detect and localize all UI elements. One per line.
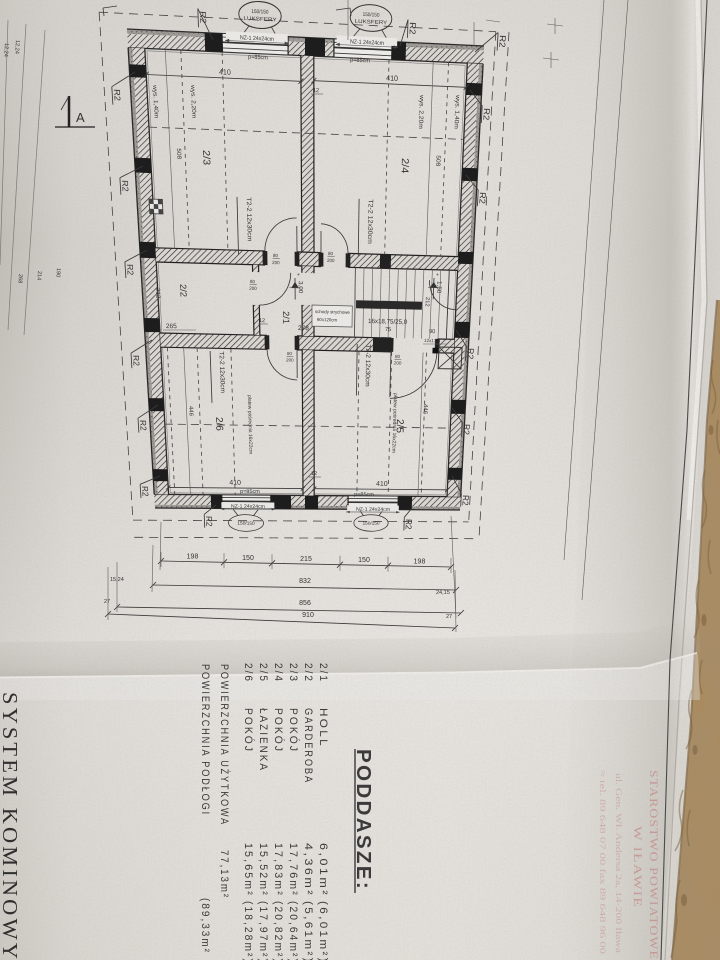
svg-text:≈ tel. 89 648 07 00 fax 89 648: ≈ tel. 89 648 07 00 fax 89 648 96 00 [598, 770, 608, 954]
svg-text:198: 198 [414, 558, 426, 565]
svg-text:2/4: 2/4 [272, 663, 284, 683]
svg-text:446: 446 [422, 404, 428, 415]
svg-text:80: 80 [250, 279, 256, 284]
svg-text:27: 27 [446, 614, 452, 620]
svg-text:150/150: 150/150 [251, 9, 268, 16]
svg-text:GARDEROBA: GARDEROBA [302, 708, 314, 784]
svg-text:schody strychowe: schody strychowe [315, 309, 350, 315]
svg-text:2/2: 2/2 [302, 663, 314, 683]
svg-text:R2: R2 [481, 108, 491, 121]
svg-text:410: 410 [229, 480, 241, 487]
svg-text:508: 508 [434, 155, 441, 167]
svg-text:17,83m²: 17,83m² [272, 843, 284, 897]
svg-text:190: 190 [55, 268, 61, 277]
svg-text:A: A [76, 110, 85, 125]
svg-text:12: 12 [311, 471, 317, 477]
svg-text:265: 265 [166, 323, 178, 330]
svg-text:214: 214 [36, 271, 42, 280]
svg-text:12,24: 12,24 [2, 43, 9, 57]
svg-text:R2: R2 [404, 519, 415, 530]
svg-text:910: 910 [302, 612, 314, 619]
svg-text:wys. 2,20m: wys. 2,20m [189, 84, 197, 119]
svg-text:W IŁAWIE: W IŁAWIE [631, 826, 645, 908]
svg-text:HOLL: HOLL [317, 708, 329, 748]
svg-text:200: 200 [272, 260, 280, 265]
svg-text:2/3: 2/3 [200, 150, 211, 166]
svg-text:(17,97m²): (17,97m²) [257, 901, 269, 960]
svg-text:R2: R2 [477, 192, 487, 204]
svg-text:p=85cm: p=85cm [248, 54, 268, 61]
svg-text:278: 278 [298, 325, 309, 332]
svg-text:410: 410 [386, 73, 398, 83]
svg-text:R2: R2 [497, 35, 507, 48]
svg-text:2/6: 2/6 [213, 417, 225, 431]
svg-text:215: 215 [300, 556, 312, 563]
svg-text:200: 200 [394, 360, 402, 365]
svg-text:wys. 2,20m: wys. 2,20m [417, 94, 425, 129]
svg-text:75: 75 [385, 327, 391, 333]
svg-text:(20,64m²): (20,64m²) [287, 901, 299, 960]
svg-text:410: 410 [376, 481, 388, 488]
svg-text:R2: R2 [408, 22, 418, 35]
svg-text:198: 198 [187, 554, 199, 561]
svg-text:R2: R2 [125, 264, 136, 276]
svg-text:200: 200 [286, 357, 294, 362]
svg-text:STAROSTWO POWIATOWE: STAROSTWO POWIATOWE [647, 770, 661, 960]
svg-text:POKÓJ: POKÓJ [242, 708, 255, 753]
svg-text:(89,33m²: (89,33m² [199, 898, 211, 954]
svg-text:+: + [436, 272, 439, 278]
svg-text:832: 832 [299, 578, 311, 585]
svg-text:R2: R2 [138, 420, 149, 431]
svg-text:p=85cm: p=85cm [350, 57, 370, 64]
svg-text:1,50: 1,50 [435, 281, 442, 294]
svg-text:(6,01m²): (6,01m²) [317, 901, 329, 960]
svg-text:212: 212 [154, 288, 161, 299]
svg-text:2/6: 2/6 [242, 663, 254, 683]
svg-text:2/4: 2/4 [399, 158, 410, 174]
svg-text:2/1: 2/1 [281, 311, 291, 324]
svg-text:p=85cm: p=85cm [354, 492, 374, 498]
svg-text:12: 12 [313, 88, 319, 95]
svg-text:ul. Gen. Wł. Andersa 2a, 14-20: ul. Gen. Wł. Andersa 2a, 14-200 Iława [614, 773, 624, 953]
svg-text:150/150: 150/150 [237, 521, 255, 526]
svg-text:60x120cm: 60x120cm [317, 317, 337, 323]
svg-text:200: 200 [327, 258, 335, 263]
svg-text:SYSTEM KOMINOWY: SYSTEM KOMINOWY [0, 692, 22, 960]
svg-text:24,15: 24,15 [436, 590, 450, 596]
svg-text:p=85cm: p=85cm [240, 489, 260, 495]
svg-text:212: 212 [424, 297, 430, 307]
svg-text:80: 80 [287, 351, 293, 356]
svg-text:410: 410 [219, 67, 231, 77]
svg-text:17,76m²: 17,76m² [287, 843, 299, 897]
svg-text:12: 12 [259, 318, 265, 324]
svg-text:16x18,75/25,0: 16x18,75/25,0 [368, 318, 408, 326]
svg-text:80: 80 [273, 253, 279, 258]
svg-text:150: 150 [358, 557, 370, 564]
svg-text:R2: R2 [131, 355, 142, 366]
svg-text:12x17,5: 12x17,5 [424, 338, 441, 343]
svg-text:150: 150 [242, 555, 254, 562]
svg-text:2/3: 2/3 [287, 663, 299, 683]
svg-text:6,01m²: 6,01m² [317, 843, 329, 897]
svg-text:446: 446 [187, 406, 194, 417]
svg-text:15,65m²: 15,65m² [242, 843, 254, 897]
svg-text:856: 856 [299, 600, 311, 607]
svg-text:R2: R2 [112, 89, 122, 101]
svg-text:(20,82m²): (20,82m²) [272, 901, 284, 960]
svg-text:POKÓJ: POKÓJ [272, 708, 285, 753]
svg-text:T2-2 12x30cm: T2-2 12x30cm [245, 197, 253, 242]
svg-text:POKÓJ: POKÓJ [287, 708, 300, 753]
svg-text:4,36m²: 4,36m² [302, 843, 314, 897]
svg-text:R2: R2 [120, 180, 130, 192]
svg-text:R2: R2 [204, 516, 215, 527]
svg-text:3,00: 3,00 [297, 281, 304, 294]
svg-text:T2-2 12x30cm: T2-2 12x30cm [366, 199, 374, 244]
svg-text:T2-2 12x30cm: T2-2 12x30cm [218, 351, 226, 393]
svg-text:15,52m²: 15,52m² [257, 843, 269, 897]
svg-text:POWIERZCHNIA PODŁOGI: POWIERZCHNIA PODŁOGI [199, 664, 211, 816]
svg-text:R2: R2 [465, 348, 475, 360]
svg-text:12,24: 12,24 [13, 40, 20, 54]
svg-text:150/150: 150/150 [362, 521, 380, 526]
svg-text:150/150: 150/150 [363, 12, 380, 19]
svg-text:R2: R2 [140, 486, 151, 497]
svg-text:508: 508 [175, 148, 182, 160]
svg-text:POWIERZCHNIA UŻYTKOWA: POWIERZCHNIA UŻYTKOWA [218, 664, 231, 826]
svg-text:T2-2 12x30cm: T2-2 12x30cm [364, 344, 372, 387]
svg-text:2/2: 2/2 [178, 284, 188, 297]
svg-text:268: 268 [17, 274, 23, 283]
svg-text:(18,28m²): (18,28m²) [242, 901, 254, 960]
svg-text:80: 80 [328, 251, 333, 256]
svg-text:R2: R2 [461, 424, 472, 435]
svg-text:90: 90 [429, 329, 435, 335]
svg-text:R2: R2 [460, 495, 471, 506]
svg-text:2/1: 2/1 [317, 663, 329, 683]
svg-text:+: + [297, 272, 300, 278]
svg-text:2/5: 2/5 [257, 663, 269, 683]
svg-text:ŁAZIENKA: ŁAZIENKA [257, 708, 269, 772]
svg-text:200: 200 [249, 286, 257, 291]
svg-text:77,13m²: 77,13m² [218, 850, 230, 899]
svg-text:(5,61m²): (5,61m²) [302, 901, 314, 960]
svg-text:27: 27 [104, 599, 110, 605]
svg-text:80: 80 [395, 354, 401, 359]
